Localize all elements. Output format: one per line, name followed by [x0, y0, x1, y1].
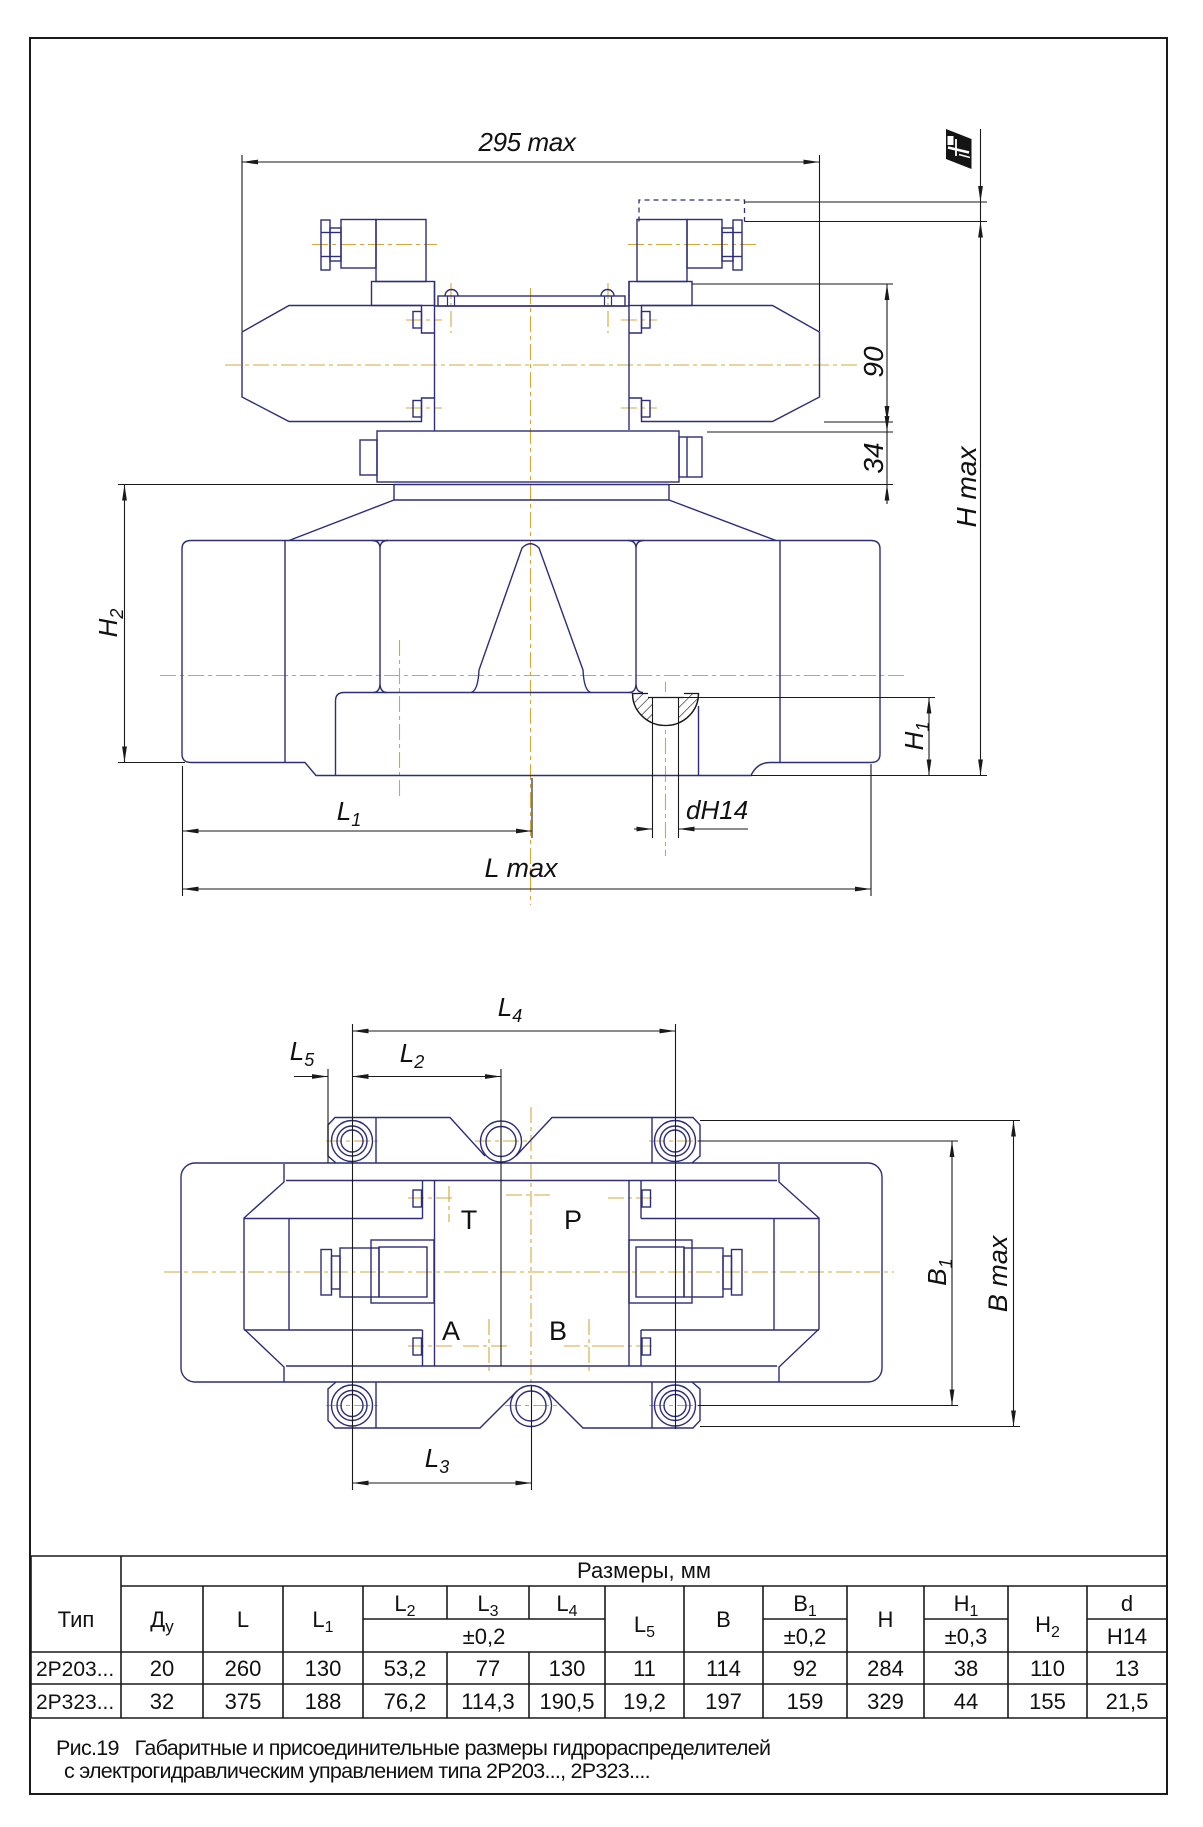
- svg-text:130: 130: [549, 1656, 586, 1681]
- svg-text:±0,2: ±0,2: [463, 1624, 506, 1649]
- svg-text:T: T: [461, 1205, 478, 1235]
- svg-text:92: 92: [793, 1656, 817, 1681]
- svg-text:190,5: 190,5: [539, 1689, 594, 1714]
- svg-text:A: A: [442, 1316, 460, 1346]
- svg-text:±0,3: ±0,3: [945, 1624, 988, 1649]
- svg-text:P: P: [564, 1205, 582, 1235]
- svg-text:34: 34: [858, 442, 889, 473]
- svg-text:114: 114: [706, 1656, 741, 1681]
- svg-text:H: H: [878, 1607, 894, 1632]
- svg-text:260: 260: [225, 1656, 262, 1681]
- svg-text:44: 44: [954, 1689, 978, 1714]
- svg-text:19,2: 19,2: [623, 1689, 666, 1714]
- svg-text:d: d: [1121, 1591, 1133, 1616]
- svg-text:L max: L max: [484, 853, 559, 883]
- svg-text:L: L: [237, 1607, 249, 1632]
- svg-text:21,5: 21,5: [1106, 1689, 1149, 1714]
- svg-text:B: B: [716, 1607, 731, 1632]
- svg-text:H14: H14: [1107, 1624, 1147, 1649]
- svg-text:dH14: dH14: [686, 795, 748, 825]
- svg-text:13: 13: [1115, 1656, 1139, 1681]
- svg-text:2Р203...: 2Р203...: [36, 1658, 114, 1681]
- svg-text:114,3: 114,3: [461, 1689, 514, 1714]
- svg-text:20: 20: [150, 1656, 174, 1681]
- svg-text:155: 155: [1029, 1689, 1066, 1714]
- svg-text:159: 159: [787, 1689, 824, 1714]
- svg-text:B max: B max: [983, 1234, 1013, 1312]
- svg-text:110: 110: [1030, 1656, 1065, 1681]
- svg-text:375: 375: [225, 1689, 262, 1714]
- svg-text:188: 188: [305, 1689, 342, 1714]
- svg-text:329: 329: [867, 1689, 904, 1714]
- svg-text:B: B: [549, 1316, 567, 1346]
- svg-text:90: 90: [858, 346, 889, 378]
- svg-text:284: 284: [867, 1656, 904, 1681]
- svg-text:32: 32: [150, 1689, 174, 1714]
- svg-text:11: 11: [633, 1656, 656, 1681]
- svg-text:38: 38: [954, 1656, 978, 1681]
- svg-text:H max: H max: [951, 446, 982, 528]
- svg-text:76,2: 76,2: [384, 1689, 427, 1714]
- svg-text:53,2: 53,2: [384, 1656, 427, 1681]
- svg-text:Размеры, мм: Размеры, мм: [577, 1558, 711, 1583]
- svg-text:с электрогидравлическим управл: с электрогидравлическим управлением типа…: [64, 1759, 650, 1783]
- svg-text:Тип: Тип: [58, 1607, 95, 1632]
- svg-text:197: 197: [705, 1689, 742, 1714]
- svg-text:Рис.19 Габаритные и присоеди: Рис.19 Габаритные и присоединительные ра…: [56, 1736, 770, 1760]
- svg-text:130: 130: [305, 1656, 342, 1681]
- svg-text:77: 77: [476, 1656, 500, 1681]
- svg-text:±0,2: ±0,2: [784, 1624, 827, 1649]
- svg-text:295 max: 295 max: [478, 127, 577, 157]
- svg-text:2Р323...: 2Р323...: [36, 1691, 114, 1714]
